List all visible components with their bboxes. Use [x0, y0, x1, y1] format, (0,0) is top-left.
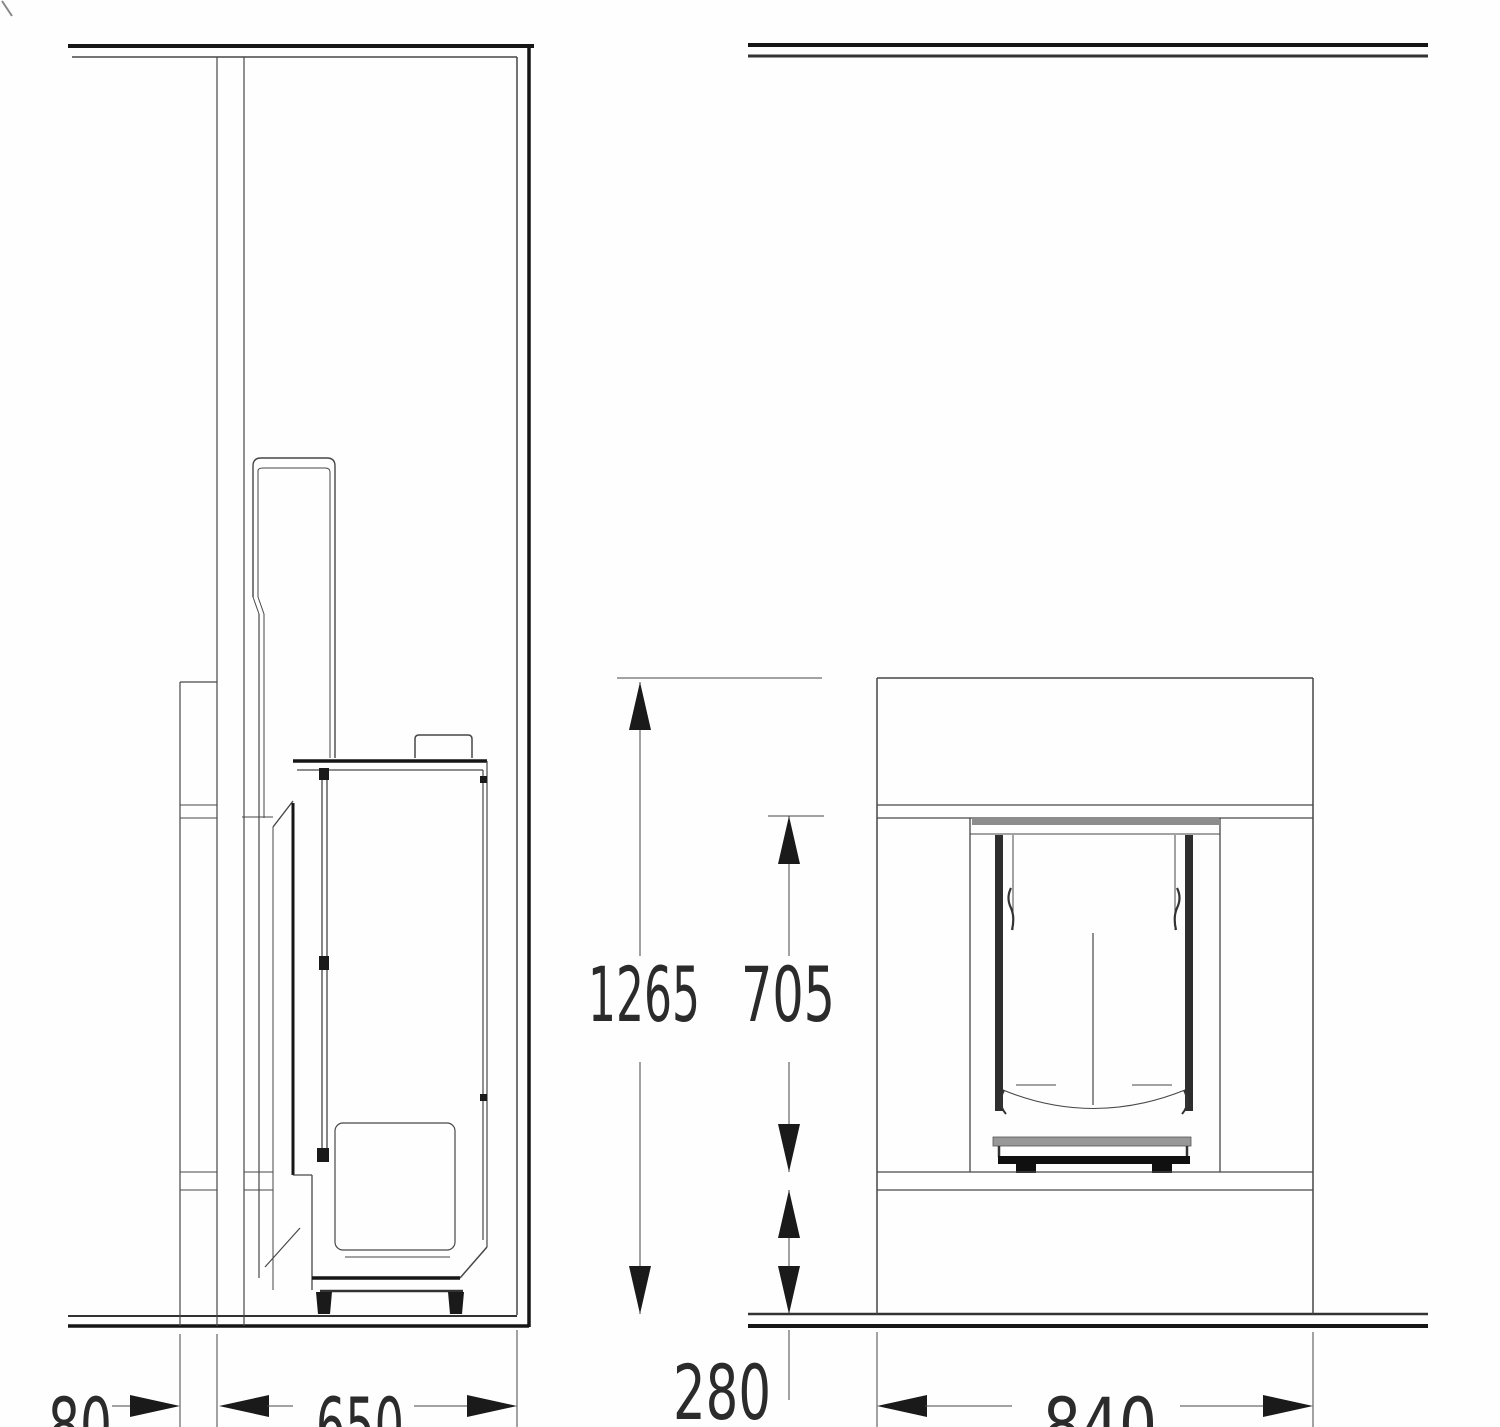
bench-lines — [877, 1172, 1313, 1190]
side-view — [68, 46, 534, 1327]
surround-outline — [877, 678, 1313, 1314]
flue-outline-inner — [258, 468, 330, 758]
arrow-down-1265 — [629, 1266, 651, 1314]
corner-artifact — [2, 1, 12, 16]
arrow-left-650 — [219, 1395, 269, 1417]
arrow-right-650 — [467, 1395, 517, 1417]
recess-sides — [970, 818, 1220, 1172]
base-bar — [998, 1156, 1190, 1164]
arrow-down-280 — [778, 1266, 800, 1314]
front-view — [748, 45, 1428, 1326]
glass-edge-right — [1185, 835, 1193, 1111]
glass-nub-top — [319, 768, 329, 780]
glass-nub-bottom — [317, 1148, 329, 1162]
flue-outline-outer — [253, 458, 335, 758]
arrow-right-80 — [130, 1395, 180, 1417]
glass-edge-left — [995, 835, 1003, 1111]
technical-drawing-page: 1265 705 280 80 650 840 — [0, 0, 1500, 1427]
base-chamfer — [460, 1247, 487, 1278]
flue-collar — [415, 735, 472, 758]
arrow-right-840 — [1263, 1395, 1313, 1417]
back-nub-top — [480, 776, 487, 783]
flue-kink — [253, 597, 264, 614]
glass-bottom-hooks — [1001, 1090, 1187, 1114]
dim-label-width: 840 — [1043, 1381, 1157, 1427]
arrow-up-280 — [778, 1190, 800, 1238]
lintel-lines — [877, 805, 1313, 818]
glass-nub-mid — [319, 956, 329, 970]
dim-label-opening-height: 705 — [741, 950, 835, 1039]
back-nub-bottom — [480, 1094, 487, 1101]
dim-label-total-height: 1265 — [588, 950, 700, 1039]
sill-bar — [993, 1137, 1191, 1146]
front-diagonal-brace — [265, 1228, 300, 1267]
rear-channel-ticks — [180, 805, 217, 1190]
arrow-left-840 — [877, 1395, 927, 1417]
ash-drawer — [335, 1123, 455, 1250]
foot-right — [448, 1292, 464, 1314]
foot-left — [316, 1292, 332, 1314]
recess-top-bar — [972, 819, 1220, 825]
glass-bottom-curve — [1003, 1090, 1185, 1109]
hood-diagonal — [273, 801, 293, 827]
arrow-down-705 — [778, 1124, 800, 1172]
frame-inner-lines — [1013, 835, 1175, 930]
dim-label-rear-gap: 80 — [48, 1381, 112, 1427]
dim-label-depth: 650 — [316, 1381, 404, 1427]
arrow-up-705 — [778, 816, 800, 864]
dim-label-base-height: 280 — [673, 1348, 771, 1427]
arrow-up-1265 — [629, 682, 651, 730]
sill-side-hooks — [999, 1146, 1187, 1157]
fireplace-installation-drawing: 1265 705 280 80 650 840 — [0, 0, 1500, 1427]
